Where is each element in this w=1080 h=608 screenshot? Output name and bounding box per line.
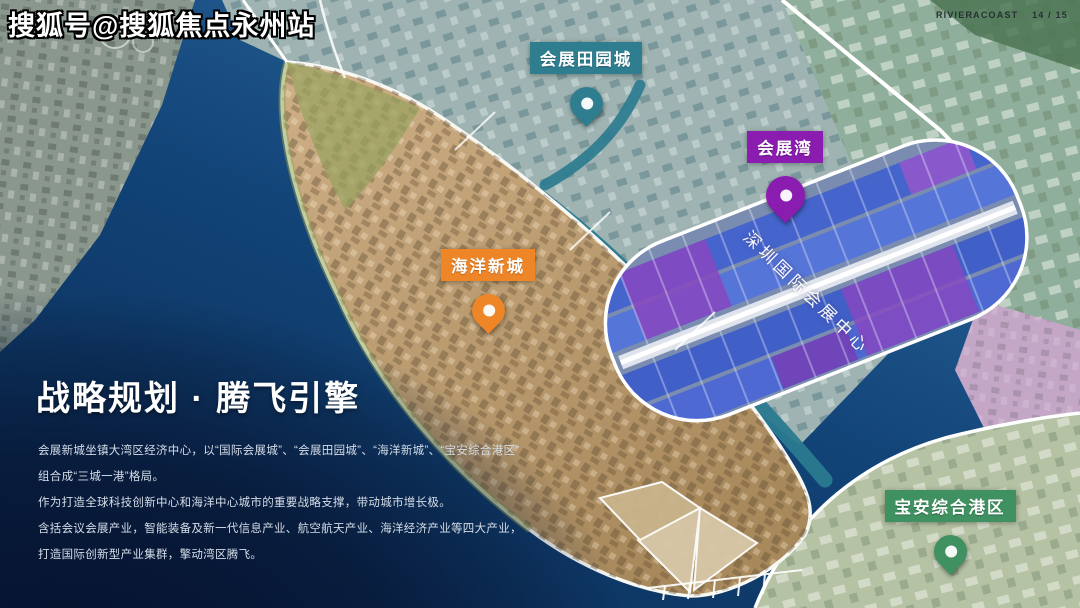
poi-exhibition-garden-city: 会展田园城 [516, 42, 656, 120]
map-label: 宝安综合港区 [885, 490, 1016, 522]
map-label: 会展田园城 [530, 42, 643, 74]
panel-body: 会展新城坐镇大湾区经济中心，以“国际会展城”、“会展田园城”、“海洋新城”、“宝… [38, 438, 522, 568]
brand-name: RIVIERACOAST [936, 10, 1018, 20]
map-label: 海洋新城 [441, 249, 535, 281]
map-pin-icon [563, 80, 610, 127]
sohu-watermark: 搜狐号@搜狐焦点永州站 [8, 4, 315, 43]
page-indicator: RIVIERACOAST 14 / 15 [936, 10, 1068, 20]
map-label: 会展湾 [747, 131, 823, 163]
page-title: 战略规划 · 腾飞引擎 [36, 371, 360, 420]
panel-text-line: 打造国际创新型产业集群，擎动湾区腾飞。 [38, 542, 522, 568]
panel-text-line: 含括会议会展产业，智能装备及新一代信息产业、航空航天产业、海洋经济产业等四大产业… [38, 516, 522, 542]
map-pin-icon [465, 287, 512, 334]
panel-text-line: 会展新城坐镇大湾区经济中心，以“国际会展城”、“会展田园城”、“海洋新城”、“宝… [38, 438, 522, 464]
aerial-masterplan-slide: 搜狐号@搜狐焦点永州站 RIVIERACOAST 14 / 15 会展田园城 会… [0, 0, 1080, 608]
panel-text-line: 组合成“三城一港”格局。 [38, 464, 522, 490]
poi-exhibition-bay: 会展湾 [715, 131, 855, 215]
poi-ocean-new-city: 海洋新城 [418, 249, 558, 327]
map-pin-icon [927, 528, 974, 575]
map-pin-icon [757, 168, 812, 223]
panel-text-line: 作为打造全球科技创新中心和海洋中心城市的重要战略支撑，带动城市增长极。 [38, 490, 522, 516]
page-number: 14 / 15 [1032, 10, 1068, 20]
poi-baoan-port-area: 宝安综合港区 [880, 490, 1020, 568]
